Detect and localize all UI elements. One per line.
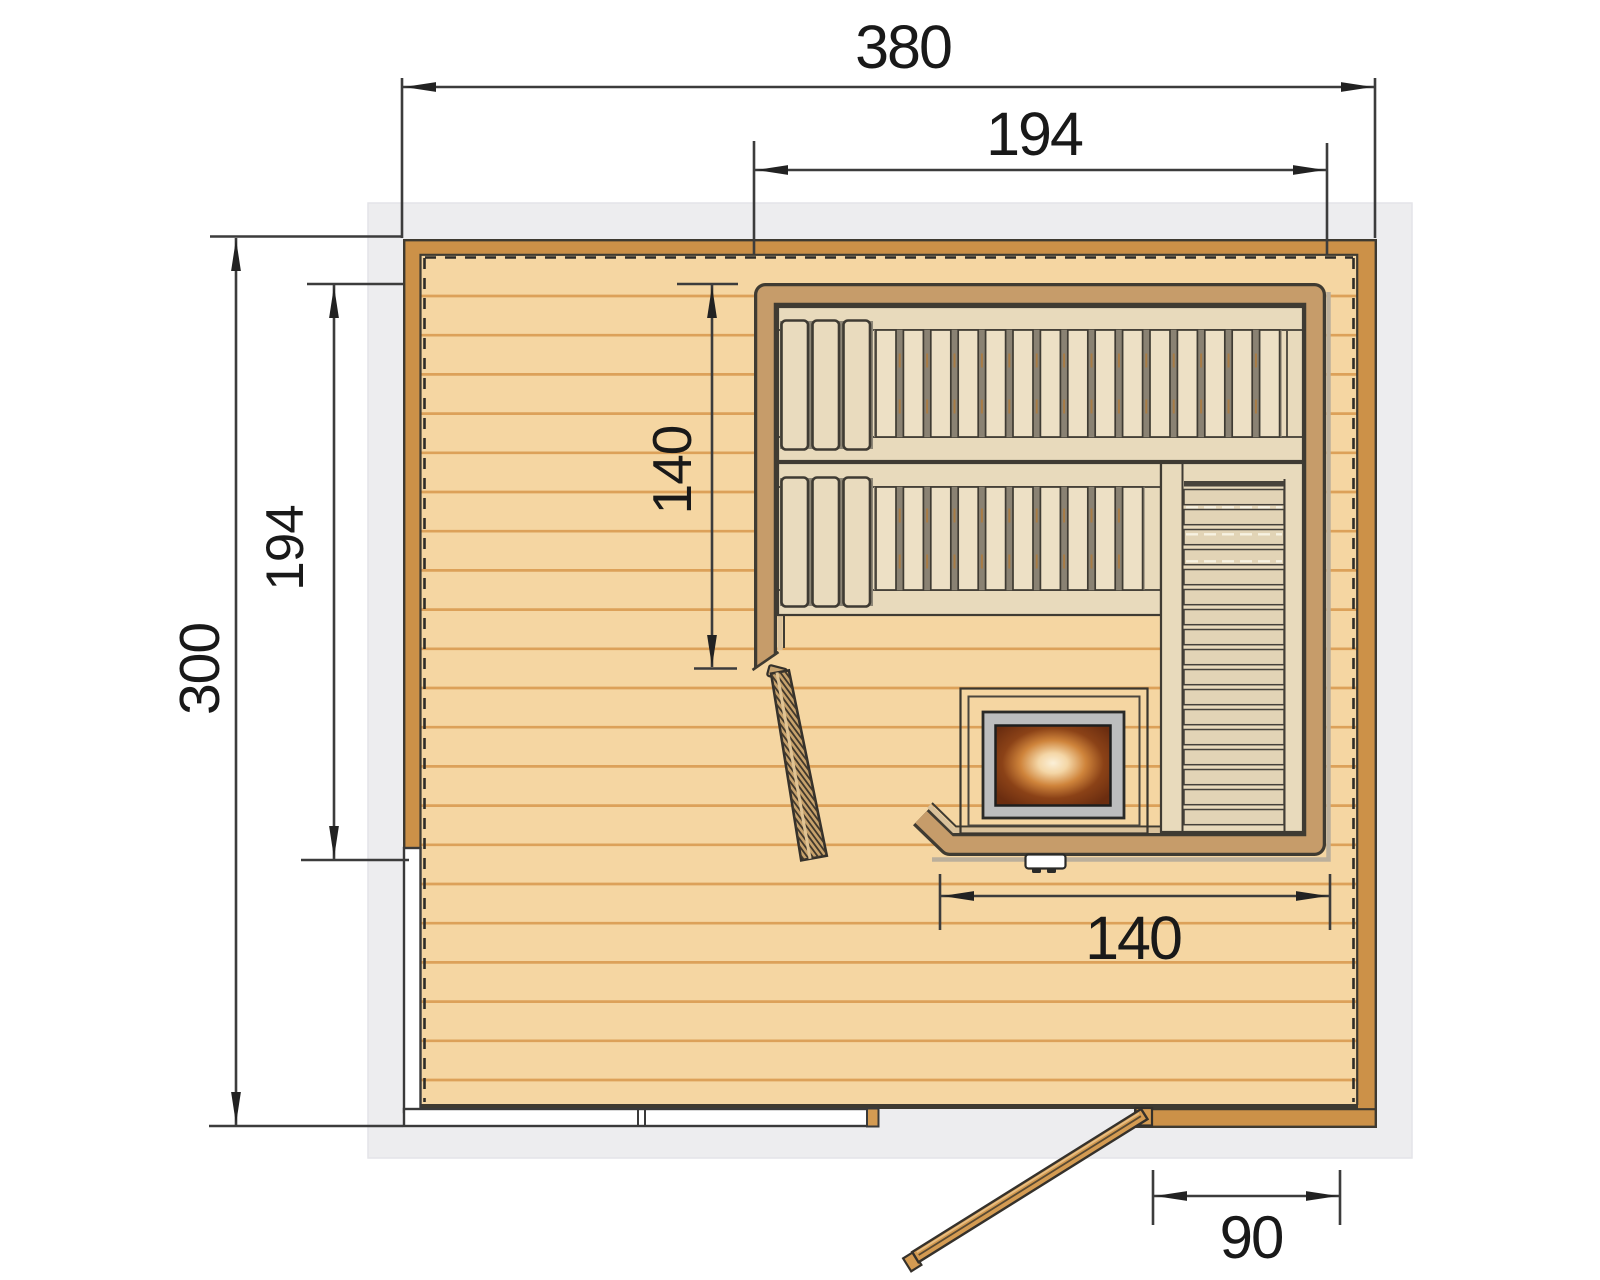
svg-text:300: 300	[168, 623, 232, 715]
svg-text:140: 140	[641, 426, 703, 515]
svg-text:140: 140	[1085, 904, 1181, 972]
svg-text:90: 90	[1220, 1204, 1283, 1271]
svg-text:380: 380	[855, 13, 951, 81]
svg-text:194: 194	[986, 100, 1083, 168]
svg-text:194: 194	[256, 505, 315, 590]
